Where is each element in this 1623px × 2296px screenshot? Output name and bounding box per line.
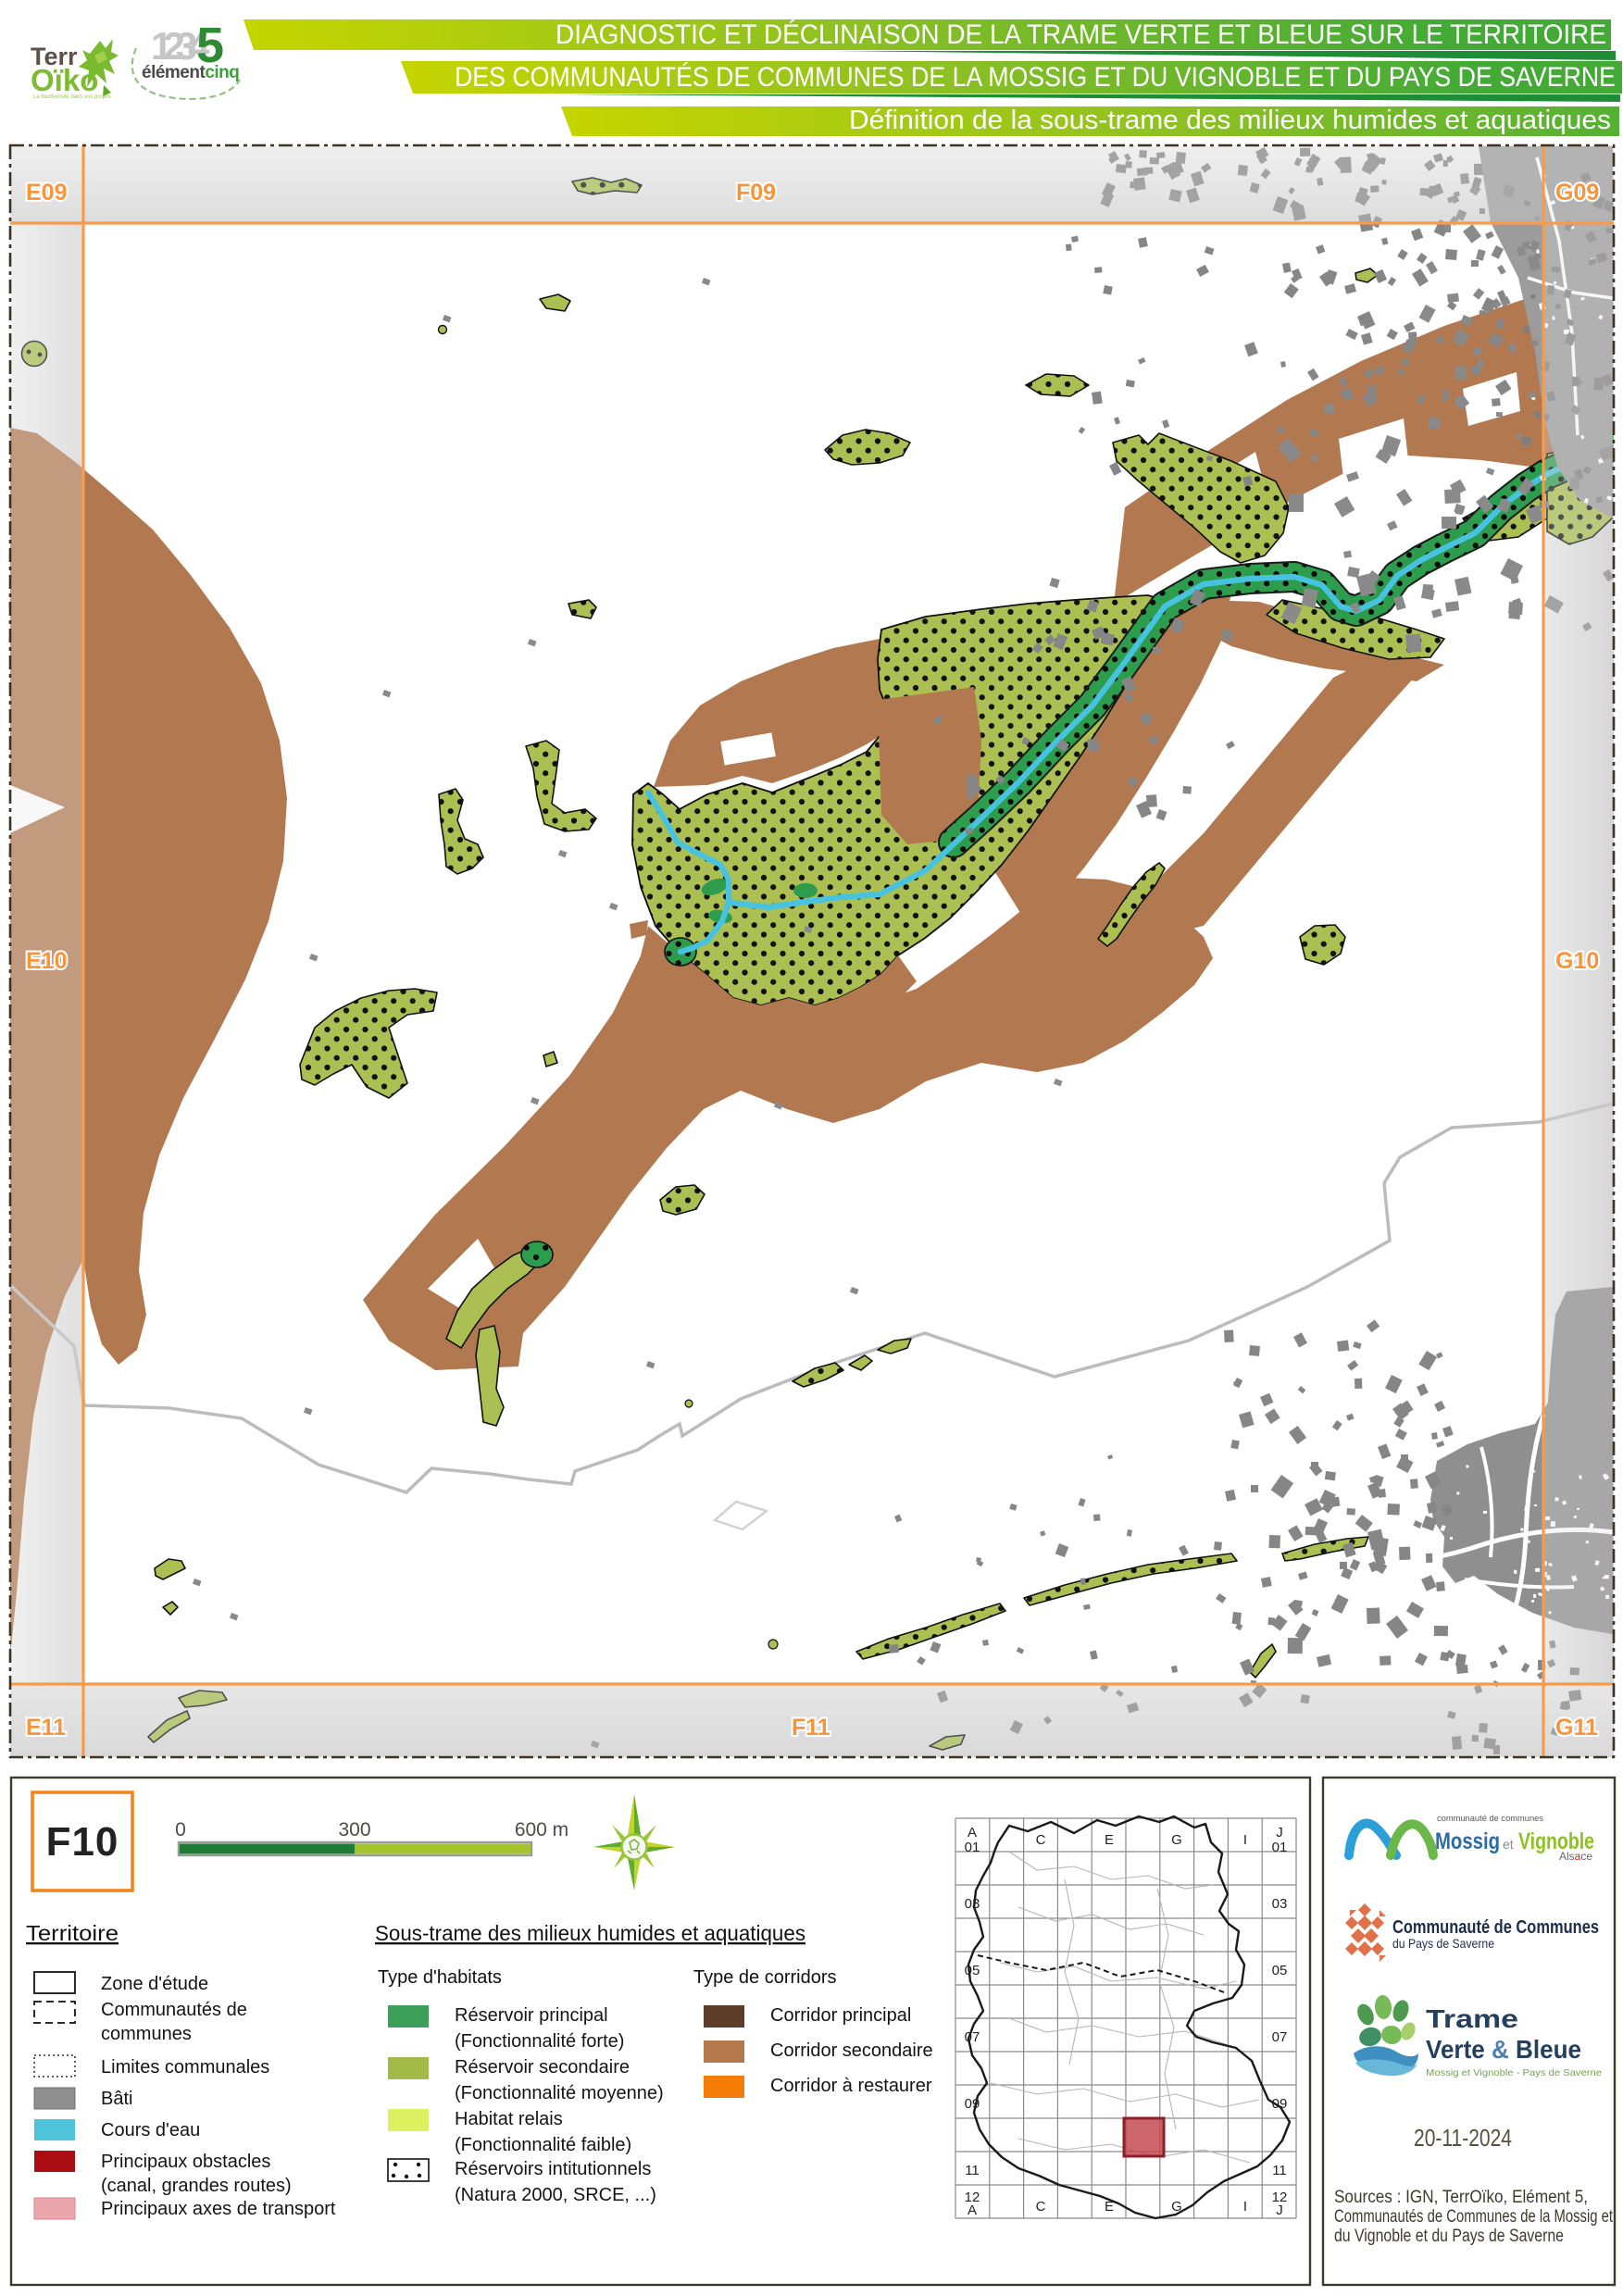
svg-text:(Fonctionnalité forte): (Fonctionnalité forte) — [455, 2031, 624, 2052]
svg-text:E11: E11 — [26, 1715, 66, 1741]
svg-text:La biodiversité dans vos proje: La biodiversité dans vos projets — [33, 94, 111, 100]
svg-text:G: G — [1171, 1832, 1182, 1848]
svg-text:A: A — [968, 2202, 977, 2218]
svg-text:E09: E09 — [26, 180, 67, 206]
svg-text:(Fonctionnalité moyenne): (Fonctionnalité moyenne) — [455, 2083, 664, 2103]
svg-text:11: 11 — [965, 2163, 980, 2178]
svg-text:20-11-2024: 20-11-2024 — [1414, 2124, 1512, 2152]
svg-text:Principaux axes de transport: Principaux axes de transport — [101, 2199, 336, 2219]
svg-text:Principaux obstacles: Principaux obstacles — [101, 2152, 270, 2172]
svg-text:07: 07 — [1272, 2029, 1288, 2045]
svg-text:Sources : IGN, TerrOïko, Eléme: Sources : IGN, TerrOïko, Elément 5, — [1334, 2188, 1588, 2207]
svg-text:Verte & Bleue: Verte & Bleue — [1426, 2035, 1581, 2064]
svg-text:J: J — [1276, 2202, 1283, 2218]
svg-text:Type de corridors: Type de corridors — [693, 1967, 837, 1988]
svg-text:(Natura 2000, SRCE, ...): (Natura 2000, SRCE, ...) — [455, 2185, 656, 2205]
svg-text:Territoire: Territoire — [26, 1921, 119, 1945]
svg-text:Sous-trame des milieux humides: Sous-trame des milieux humides et aquati… — [375, 1921, 805, 1945]
svg-text:Réservoir secondaire: Réservoir secondaire — [455, 2057, 630, 2078]
svg-text:communes: communes — [101, 2024, 192, 2044]
svg-text:G11: G11 — [1555, 1715, 1598, 1741]
svg-text:I: I — [1243, 1832, 1247, 1848]
svg-text:élémentcinq: élémentcinq — [142, 63, 239, 82]
svg-text:Mossig et Vignoble - Pays de S: Mossig et Vignoble - Pays de Saverne — [1426, 2067, 1602, 2078]
svg-text:Zone d'étude: Zone d'étude — [101, 1974, 208, 1994]
svg-text:11: 11 — [1272, 2163, 1287, 2178]
svg-text:du Pays de Saverne: du Pays de Saverne — [1392, 1936, 1494, 1951]
svg-text:Bâti: Bâti — [101, 2089, 132, 2109]
svg-text:J: J — [1276, 1825, 1283, 1841]
svg-text:(Fonctionnalité faible): (Fonctionnalité faible) — [455, 2135, 631, 2155]
svg-text:01: 01 — [965, 1840, 980, 1855]
svg-text:DES COMMUNAUTÉS DE COMMUNES DE: DES COMMUNAUTÉS DE COMMUNES DE LA MOSSIG… — [455, 62, 1616, 93]
svg-text:Réservoirs intitutionnels: Réservoirs intitutionnels — [455, 2159, 651, 2179]
svg-text:Mossig: Mossig — [1435, 1828, 1500, 1854]
svg-text:DIAGNOSTIC ET DÉCLINAISON DE L: DIAGNOSTIC ET DÉCLINAISON DE LA TRAME VE… — [556, 19, 1606, 50]
svg-text:G09: G09 — [1555, 180, 1599, 206]
svg-text:05: 05 — [1272, 1963, 1288, 1978]
svg-text:C: C — [1036, 2199, 1046, 2215]
svg-text:F10: F10 — [46, 1819, 119, 1865]
svg-text:Alsace: Alsace — [1559, 1850, 1592, 1863]
svg-text:05: 05 — [965, 1963, 980, 1978]
svg-text:E10: E10 — [26, 948, 67, 974]
svg-text:A: A — [968, 1825, 977, 1841]
svg-text:03: 03 — [965, 1896, 980, 1912]
svg-text:Trame: Trame — [1426, 2004, 1518, 2033]
svg-text:Limites communales: Limites communales — [101, 2057, 269, 2078]
svg-text:600 m: 600 m — [515, 1819, 568, 1841]
svg-text:Corridor principal: Corridor principal — [770, 2005, 911, 2026]
svg-text:F09: F09 — [736, 180, 776, 206]
svg-text:Cours d'eau: Cours d'eau — [101, 2120, 200, 2140]
svg-text:Communauté de Communes: Communauté de Communes — [1392, 1917, 1599, 1938]
svg-text:E: E — [1105, 1832, 1114, 1848]
svg-text:300: 300 — [338, 1819, 370, 1841]
svg-text:communauté de communes: communauté de communes — [1437, 1814, 1543, 1824]
svg-text:F11: F11 — [792, 1715, 830, 1741]
svg-text:et: et — [1503, 1837, 1514, 1852]
svg-text:du Vignoble et du Pays de Save: du Vignoble et du Pays de Saverne — [1334, 2227, 1564, 2246]
svg-text:01: 01 — [1272, 1840, 1288, 1855]
svg-text:Communautés de: Communautés de — [101, 2000, 247, 2020]
svg-text:C: C — [1036, 1832, 1046, 1848]
svg-text:Habitat relais: Habitat relais — [455, 2109, 563, 2129]
svg-text:(canal, grandes routes): (canal, grandes routes) — [101, 2176, 292, 2196]
svg-text:Réservoir principal: Réservoir principal — [455, 2005, 608, 2026]
svg-text:I: I — [1243, 2199, 1247, 2215]
svg-text:Corridor secondaire: Corridor secondaire — [770, 2040, 933, 2061]
svg-text:03: 03 — [1272, 1896, 1288, 1912]
svg-text:Type d'habitats: Type d'habitats — [378, 1967, 502, 1988]
svg-text:Communautés de Communes de la: Communautés de Communes de la Mossig et — [1334, 2207, 1614, 2227]
svg-text:Corridor à restaurer: Corridor à restaurer — [770, 2076, 932, 2096]
svg-text:0: 0 — [175, 1819, 186, 1841]
svg-text:G10: G10 — [1555, 948, 1599, 974]
svg-text:Définition de la sous-trame de: Définition de la sous-trame des milieux … — [849, 106, 1611, 135]
